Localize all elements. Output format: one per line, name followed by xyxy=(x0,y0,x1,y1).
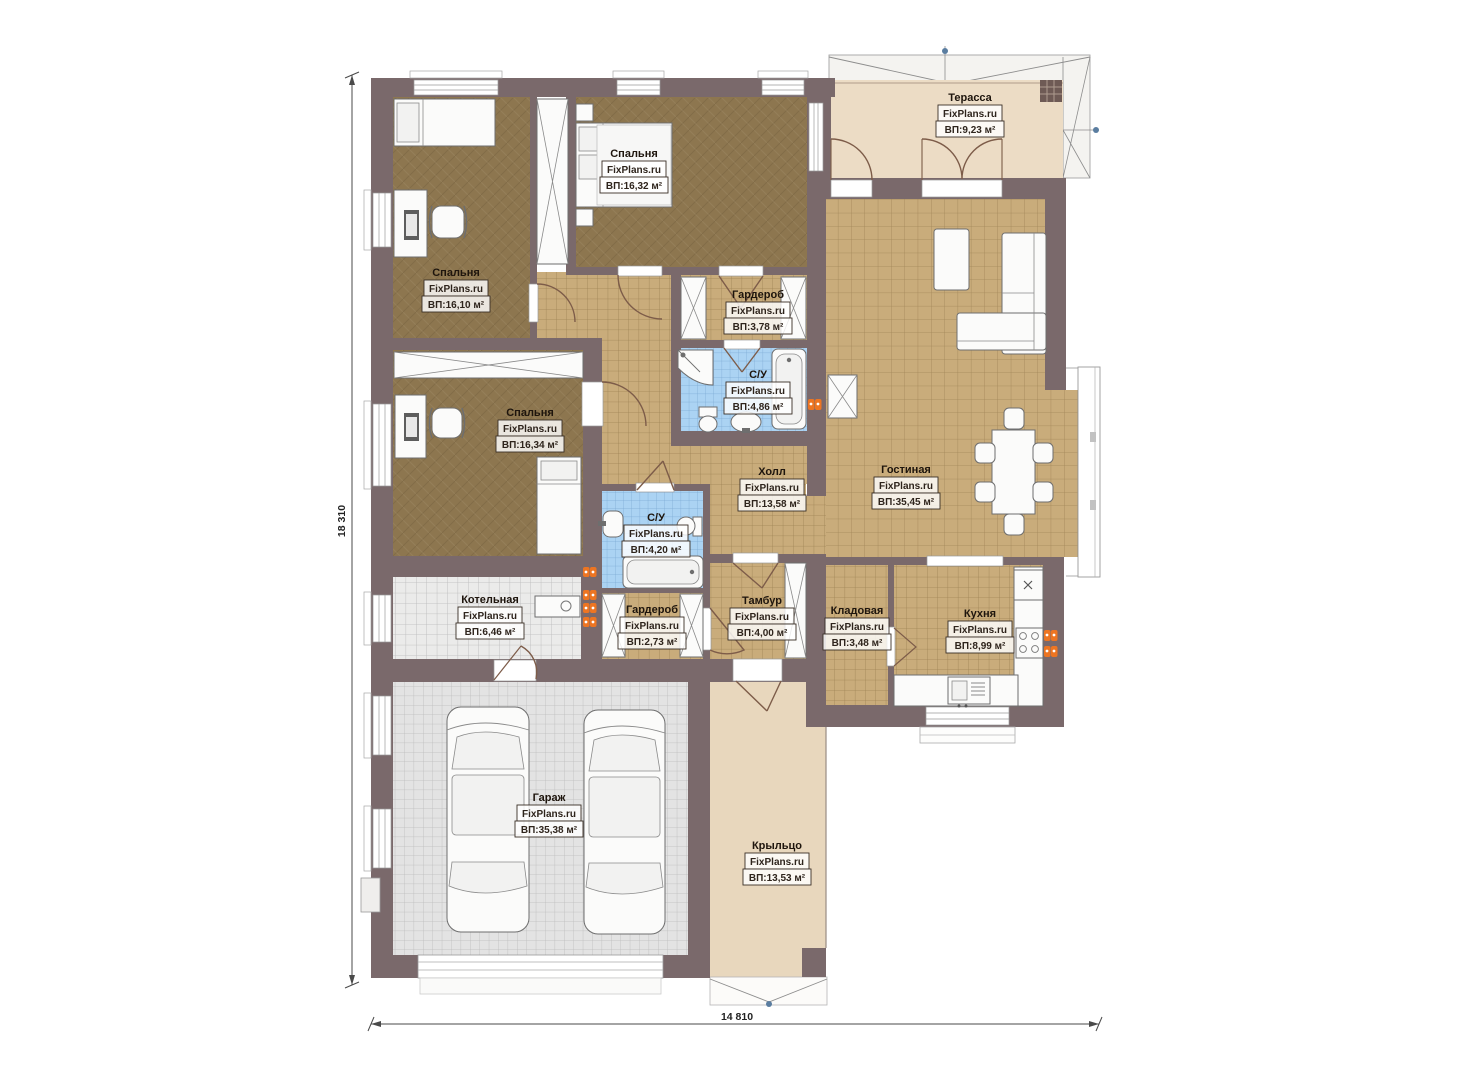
svg-text:ВП:3,48 м²: ВП:3,48 м² xyxy=(832,638,883,649)
svg-text:ВП:2,73 м²: ВП:2,73 м² xyxy=(627,637,678,648)
svg-text:FixPlans.ru: FixPlans.ru xyxy=(522,809,576,820)
svg-text:FixPlans.ru: FixPlans.ru xyxy=(879,481,933,492)
svg-text:ВП:3,78 м²: ВП:3,78 м² xyxy=(733,322,784,333)
svg-text:ВП:4,00 м²: ВП:4,00 м² xyxy=(737,628,788,639)
svg-text:FixPlans.ru: FixPlans.ru xyxy=(463,611,517,622)
svg-text:ВП:35,45 м²: ВП:35,45 м² xyxy=(878,497,935,508)
svg-text:ВП:8,99 м²: ВП:8,99 м² xyxy=(955,641,1006,652)
svg-text:Гостиная: Гостиная xyxy=(881,464,931,476)
svg-text:FixPlans.ru: FixPlans.ru xyxy=(943,109,997,120)
svg-text:ВП:4,20 м²: ВП:4,20 м² xyxy=(631,545,682,556)
svg-text:Спальня: Спальня xyxy=(506,407,554,419)
svg-text:18 310: 18 310 xyxy=(336,505,348,537)
svg-text:ВП:9,23 м²: ВП:9,23 м² xyxy=(945,125,996,136)
svg-text:FixPlans.ru: FixPlans.ru xyxy=(953,625,1007,636)
svg-text:FixPlans.ru: FixPlans.ru xyxy=(429,284,483,295)
svg-text:FixPlans.ru: FixPlans.ru xyxy=(750,857,804,868)
svg-text:FixPlans.ru: FixPlans.ru xyxy=(745,483,799,494)
svg-text:Тамбур: Тамбур xyxy=(742,595,782,607)
svg-text:Кухня: Кухня xyxy=(964,608,996,620)
svg-text:FixPlans.ru: FixPlans.ru xyxy=(607,165,661,176)
svg-text:FixPlans.ru: FixPlans.ru xyxy=(629,529,683,540)
svg-text:ВП:13,58 м²: ВП:13,58 м² xyxy=(744,499,801,510)
svg-text:Гардероб: Гардероб xyxy=(626,604,678,616)
svg-text:ВП:6,46 м²: ВП:6,46 м² xyxy=(465,627,516,638)
svg-text:С/У: С/У xyxy=(749,369,767,381)
svg-text:FixPlans.ru: FixPlans.ru xyxy=(625,621,679,632)
svg-text:Гараж: Гараж xyxy=(533,792,566,804)
svg-text:FixPlans.ru: FixPlans.ru xyxy=(735,612,789,623)
svg-text:FixPlans.ru: FixPlans.ru xyxy=(731,306,785,317)
svg-text:С/У: С/У xyxy=(647,512,665,524)
svg-text:FixPlans.ru: FixPlans.ru xyxy=(830,622,884,633)
svg-text:ВП:13,53 м²: ВП:13,53 м² xyxy=(749,873,806,884)
svg-text:ВП:16,34 м²: ВП:16,34 м² xyxy=(502,440,559,451)
svg-text:Крыльцо: Крыльцо xyxy=(752,840,802,852)
svg-text:Спальня: Спальня xyxy=(432,267,480,279)
svg-text:Спальня: Спальня xyxy=(610,148,658,160)
svg-text:Терасса: Терасса xyxy=(948,92,992,104)
svg-text:14 810: 14 810 xyxy=(721,1011,753,1023)
svg-text:ВП:4,86 м²: ВП:4,86 м² xyxy=(733,402,784,413)
svg-text:ВП:35,38 м²: ВП:35,38 м² xyxy=(521,825,578,836)
svg-text:Котельная: Котельная xyxy=(461,594,519,606)
svg-text:ВП:16,10 м²: ВП:16,10 м² xyxy=(428,300,485,311)
svg-text:FixPlans.ru: FixPlans.ru xyxy=(503,424,557,435)
svg-text:Кладовая: Кладовая xyxy=(831,605,884,617)
svg-text:Гардероб: Гардероб xyxy=(732,289,784,301)
svg-text:Холл: Холл xyxy=(758,466,786,478)
svg-text:ВП:16,32 м²: ВП:16,32 м² xyxy=(606,181,663,192)
svg-text:FixPlans.ru: FixPlans.ru xyxy=(731,386,785,397)
